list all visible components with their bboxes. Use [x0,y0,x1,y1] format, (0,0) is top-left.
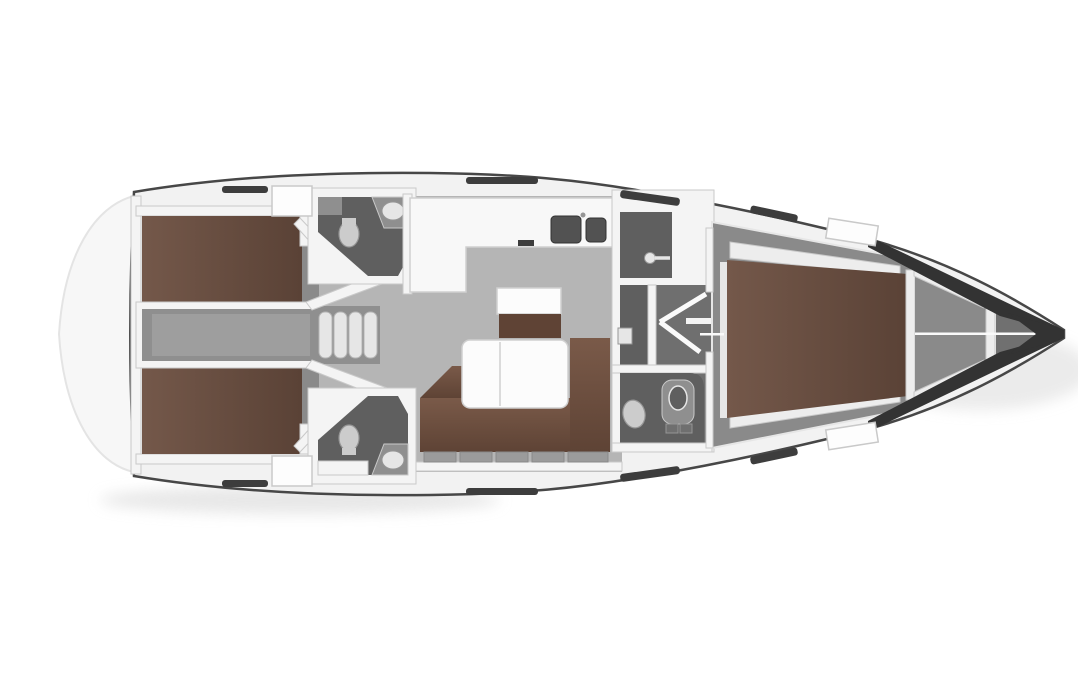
step-tread [319,312,332,358]
seat-box [618,328,632,344]
toilet-tank [342,218,356,225]
forward-head [612,365,712,452]
double-bed [142,368,302,454]
locker [568,452,608,462]
shower-floor-lower [620,285,648,365]
locker [532,452,564,462]
locker [496,452,528,462]
chart-bench [499,314,561,338]
bulkhead [706,352,713,448]
sofa-right-bench [570,338,610,452]
step-tread [364,312,377,358]
drawer [680,424,692,433]
deck-window-slot [222,186,268,193]
galley-sink-large [551,216,581,243]
vanity-cabinet [318,197,342,215]
locker [424,452,456,462]
step-tread [334,312,347,358]
yacht-floorplan-canvas [0,0,1078,675]
head-wall-top [612,365,712,373]
chart-table [497,288,561,338]
drawer [666,424,678,433]
center-line-aft [700,333,724,336]
step-tread [349,312,362,358]
bulkhead [706,228,713,292]
engine-walkway [136,302,318,368]
salon-table [462,340,568,408]
toilet-tank [342,448,356,455]
head-port [308,188,416,284]
washbasin [669,386,687,410]
bath-bench [318,461,368,475]
toilet [339,425,359,451]
head-wall-bottom [612,443,712,452]
faucet [581,213,586,218]
galley-sink-small [586,218,606,242]
forward-bulkhead [906,270,915,400]
head-starboard [308,388,416,484]
shower-head-icon [645,253,656,264]
double-bed [142,216,302,302]
washbasin [382,202,404,220]
locker-row [424,452,608,462]
floorplan-svg [0,0,1078,675]
shower-floor [620,212,672,278]
stove [518,240,534,246]
deck-hatch [272,186,312,216]
midship-block [612,190,714,452]
washbasin [382,451,404,469]
locker [460,452,492,462]
corridor-wall [648,285,656,365]
v-bed [727,260,908,418]
walkway-floor-inner [152,314,310,356]
bed-foot-board [720,262,727,418]
deck-window-slot [466,488,538,495]
door-jamb [686,318,714,324]
deck-window-slot [222,480,268,487]
deck-hatch [272,456,312,486]
deck-window-slot [466,177,538,184]
chart-desk [497,288,561,314]
